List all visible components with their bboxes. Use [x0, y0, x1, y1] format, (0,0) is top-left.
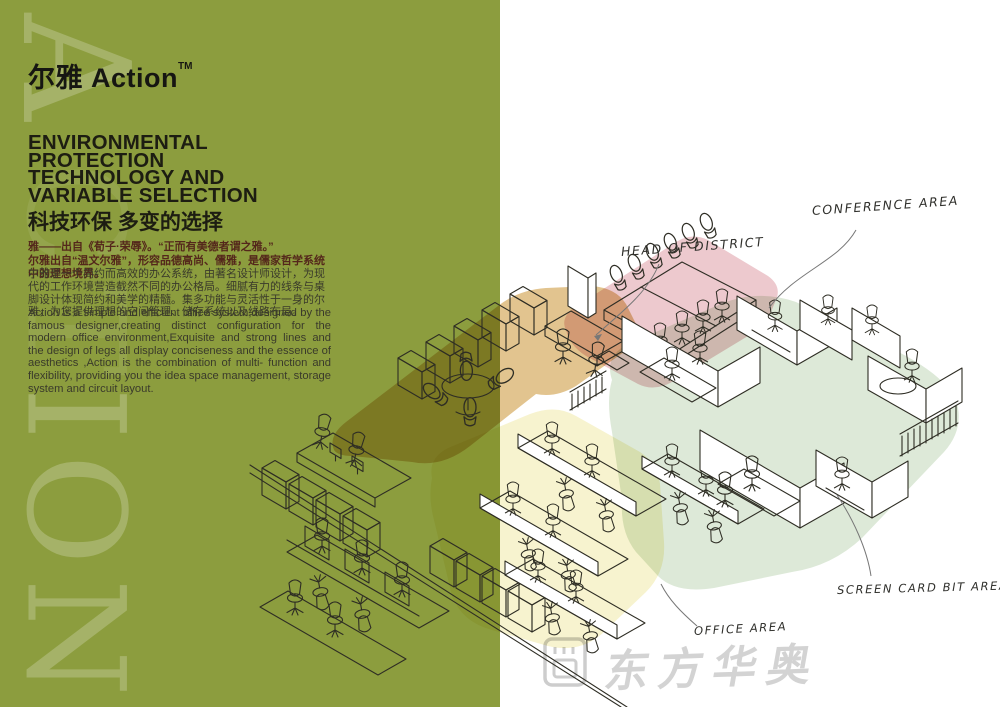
leader-office-area: [661, 584, 697, 626]
leader-conference: [769, 230, 856, 308]
office-floorplan-sketch: [0, 0, 1000, 707]
